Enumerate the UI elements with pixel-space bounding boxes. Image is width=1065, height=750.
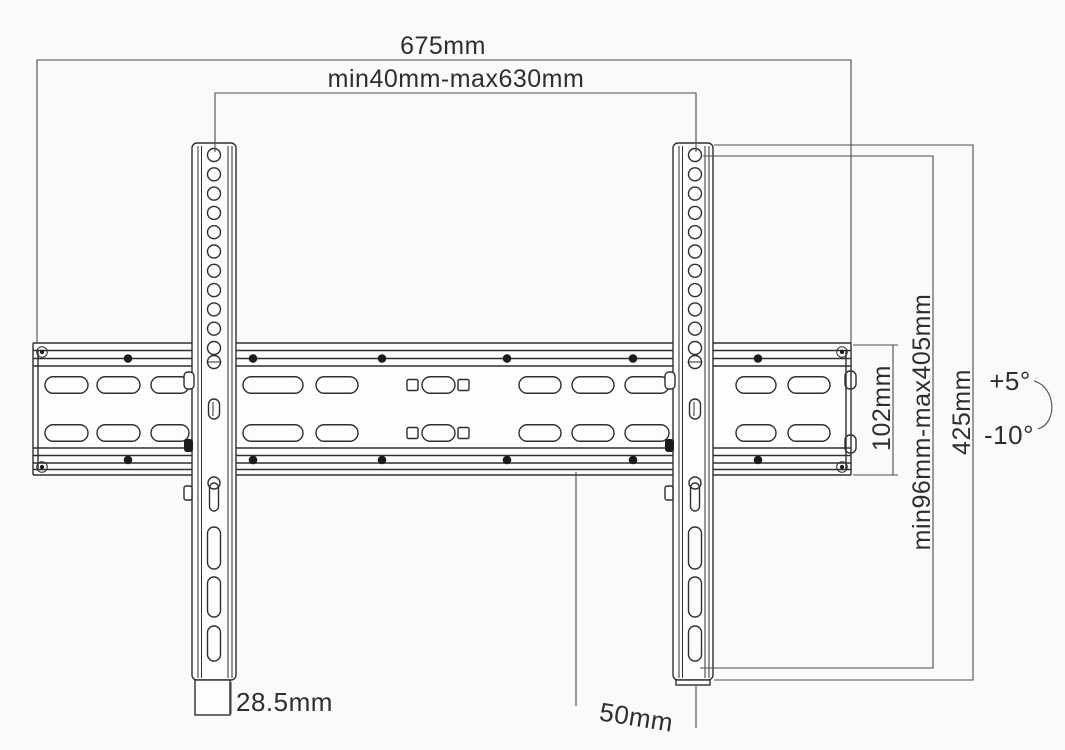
tilt-arc-icon [1034, 381, 1052, 429]
rail-bolt [754, 456, 763, 465]
dim-label-horizontal-range: min40mm-max630mm [328, 65, 585, 93]
dim-label-vertical-range: min96mm-max405mm [908, 294, 936, 551]
rail-bolt [378, 354, 387, 363]
dim-label-total-width: 675mm [400, 32, 486, 60]
rail-bolt [249, 456, 258, 465]
wall-plate [33, 343, 856, 475]
rail-bolt [629, 354, 638, 363]
rail-bolt [124, 456, 133, 465]
rail-bolt [503, 456, 512, 465]
rail-bolt [249, 354, 258, 363]
rail-bolt [629, 456, 638, 465]
tilt-up-label: +5° [989, 366, 1031, 396]
dim-total-width-line [37, 60, 851, 343]
screw-center [840, 350, 844, 354]
rail-clamp [184, 439, 193, 452]
bracket-end-cap [195, 680, 230, 715]
left-vesa-bracket [184, 143, 236, 715]
tv-wall-mount-dimension-drawing: 675mm min40mm-max630mm 102mm min96mm-max… [0, 0, 1065, 750]
screw-center [40, 350, 44, 354]
screw-center [840, 465, 844, 469]
rail-clamp [665, 439, 674, 452]
bracket-body [192, 143, 236, 680]
bracket-end-cap [676, 680, 710, 685]
dim-label-plate-height: 102mm [868, 365, 896, 451]
rail-hook [184, 372, 194, 389]
rail-hook [184, 486, 192, 500]
tilt-down-label: -10° [984, 420, 1034, 450]
rail-hook [665, 486, 673, 500]
dim-label-bracket-height: 425mm [948, 369, 976, 455]
screw-center [40, 465, 44, 469]
rail-bolt [503, 354, 512, 363]
diagram-canvas: 675mm min40mm-max630mm 102mm min96mm-max… [0, 0, 1065, 750]
dim-horizontal-range-line [215, 93, 696, 152]
rail-hook [665, 372, 675, 389]
rail-bolt [378, 456, 387, 465]
rail-bolt [124, 354, 133, 363]
rail-bolt [754, 354, 763, 363]
dim-label-wall-clearance: 50mm [597, 696, 675, 737]
dim-label-bracket-width: 28.5mm [236, 687, 333, 717]
